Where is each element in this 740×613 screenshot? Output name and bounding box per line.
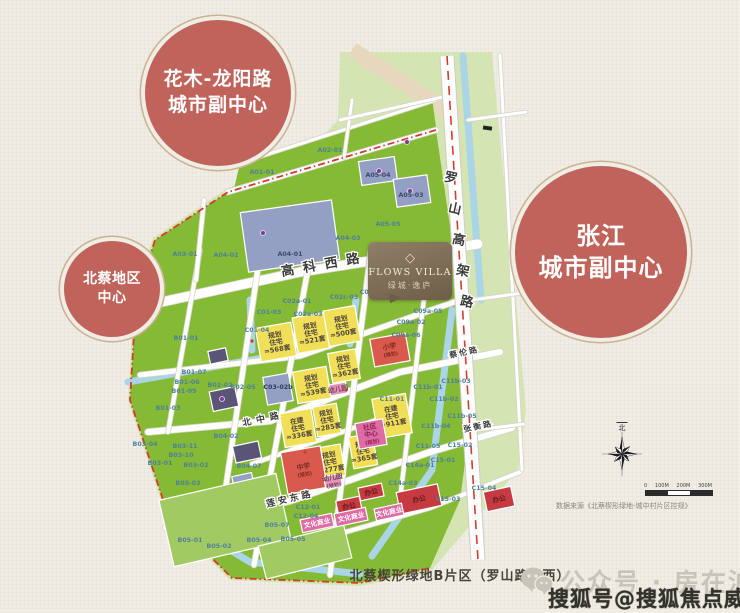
parcel-code: B01-03: [156, 405, 181, 412]
bubble-line: 花木-龙阳路: [164, 67, 273, 93]
map-parcel: 在建住宅≈336套: [279, 408, 316, 447]
parcel-code: A04-03: [335, 235, 360, 242]
scale-label: 0: [644, 483, 647, 489]
parcel-code: B05-05: [281, 536, 306, 543]
parcel-code: B01-05: [172, 388, 197, 395]
map-parcel: 规划住宅≈539套: [292, 366, 331, 403]
parcel-code: B05-03: [176, 480, 201, 487]
map-parcel: 规划住宅≈500套: [323, 305, 361, 346]
scale-label: 200M: [677, 483, 691, 489]
bubble-zhangjiang-subcenter: 张江 城市副中心: [515, 166, 687, 338]
parcel-code: C12-04: [294, 513, 319, 520]
scale-label: 100M: [655, 483, 669, 489]
parcel-code: B04-02: [214, 433, 239, 440]
parcel-code: B05-07: [265, 522, 290, 529]
scale-bar: 0 100M 200M 300M: [645, 483, 713, 496]
parcel-code: B05-04: [247, 537, 273, 544]
parcel-code: C01-03: [257, 309, 282, 316]
parcel-code: A05-03: [398, 192, 423, 199]
scale-bar-labels: 0 100M 200M 300M: [644, 483, 712, 489]
poi-dot: [250, 339, 253, 342]
diamond-logo-icon: ◇: [405, 252, 415, 265]
parcel-code: A01-01: [249, 169, 274, 176]
parcel-code: C11b-01: [413, 384, 442, 391]
parcel-code: C15-03: [436, 496, 461, 503]
parcel-code: C09a-06: [391, 332, 421, 339]
parcel-code: A05-04: [365, 172, 391, 179]
bubble-line: 北蔡地区: [83, 270, 141, 289]
parcel-code: A04-02: [213, 252, 238, 259]
station-dot: [261, 231, 266, 236]
scale-segment: [667, 491, 690, 495]
parcel-code: B02-05: [231, 384, 256, 391]
parcel-code: C11b-04: [421, 423, 451, 430]
poi-dot: [303, 450, 306, 453]
bubble-line: 城市副中心: [539, 252, 664, 284]
parcel-code: A05-05: [375, 221, 400, 228]
data-source-note: 数据来源《北蔡楔形绿地-城中村片区控规》: [556, 501, 736, 511]
parcel-code: C09a-05: [413, 308, 442, 315]
parcel-code: C02a-03: [293, 311, 322, 318]
parcel-code: B01-01: [174, 335, 199, 342]
parcel-code: A02-01: [317, 147, 342, 154]
flows-villa-location-marker: ◇ FLOWS VILLA 绿城·逸庐: [368, 242, 452, 300]
scale-segment: [646, 491, 667, 495]
parcel-code: B03-11: [173, 443, 198, 450]
logo-subtitle: 绿城·逸庐: [388, 280, 433, 291]
parcel-code: B03-01: [148, 460, 173, 467]
map-parcel: 社区中心(规划): [355, 419, 387, 449]
map-parcel: 规划住宅≈362套: [328, 349, 361, 383]
bubble-line: 中心: [98, 289, 127, 308]
scale-segment: [691, 491, 712, 495]
parcel-code: B04-07: [237, 463, 262, 470]
bubble-huamu-longyang-subcenter: 花木-龙阳路 城市副中心: [145, 20, 291, 166]
parcel-code: C11b-02: [429, 396, 458, 403]
parcel-code: B05-01: [178, 537, 203, 544]
parcel-code: C02c-03: [330, 294, 359, 301]
parcel-code: C02a-01: [282, 298, 311, 305]
parcel-code: C15-02: [448, 442, 473, 449]
parcel-code: C12-01: [296, 504, 321, 511]
parcel-code: B02-02: [208, 382, 233, 389]
parcel-code: C11b-05: [447, 413, 476, 420]
station-dot: [405, 140, 410, 145]
bubble-line: 张江: [576, 220, 626, 252]
parcel-code: C03-02b: [263, 384, 293, 391]
parcel-code: B01-07: [182, 369, 207, 376]
parcel-code: B05-02: [207, 543, 232, 550]
parcel-code: A04-01: [277, 251, 302, 258]
parcel-code: C09a-02: [396, 319, 425, 326]
compass-rose: 北: [598, 424, 646, 482]
parcel-code: B03-10: [169, 452, 195, 459]
parcel-code: C15-04: [472, 485, 497, 492]
parcel-code: C11-01: [380, 396, 405, 403]
bubble-beicai-district-center: 北蔡地区 中心: [64, 241, 160, 337]
parcel-code: B03-02: [184, 462, 209, 469]
parcel-code: A03-01: [172, 251, 197, 258]
parcel-code: B03-04: [133, 441, 159, 448]
parcel-code: C15-01: [431, 457, 456, 464]
logo-title: FLOWS VILLA: [368, 267, 451, 278]
parcel-code: B01-06: [175, 379, 201, 386]
parcel-code: C14a-03: [388, 480, 417, 487]
poi-dot: [344, 388, 347, 391]
parcel-code: C01-04: [245, 327, 270, 334]
page: { "bubbles": [ {"name":"huamu-longyang-s…: [0, 0, 740, 609]
scale-label: 300M: [698, 483, 712, 489]
bubble-line: 城市副中心: [168, 93, 268, 119]
compass-north-label: 北: [617, 422, 628, 433]
scale-bar-segments: [645, 490, 713, 496]
parcel-code: C11-05: [416, 443, 441, 450]
station-dot: [220, 397, 225, 402]
parcel-code: C11b-03: [441, 378, 470, 385]
